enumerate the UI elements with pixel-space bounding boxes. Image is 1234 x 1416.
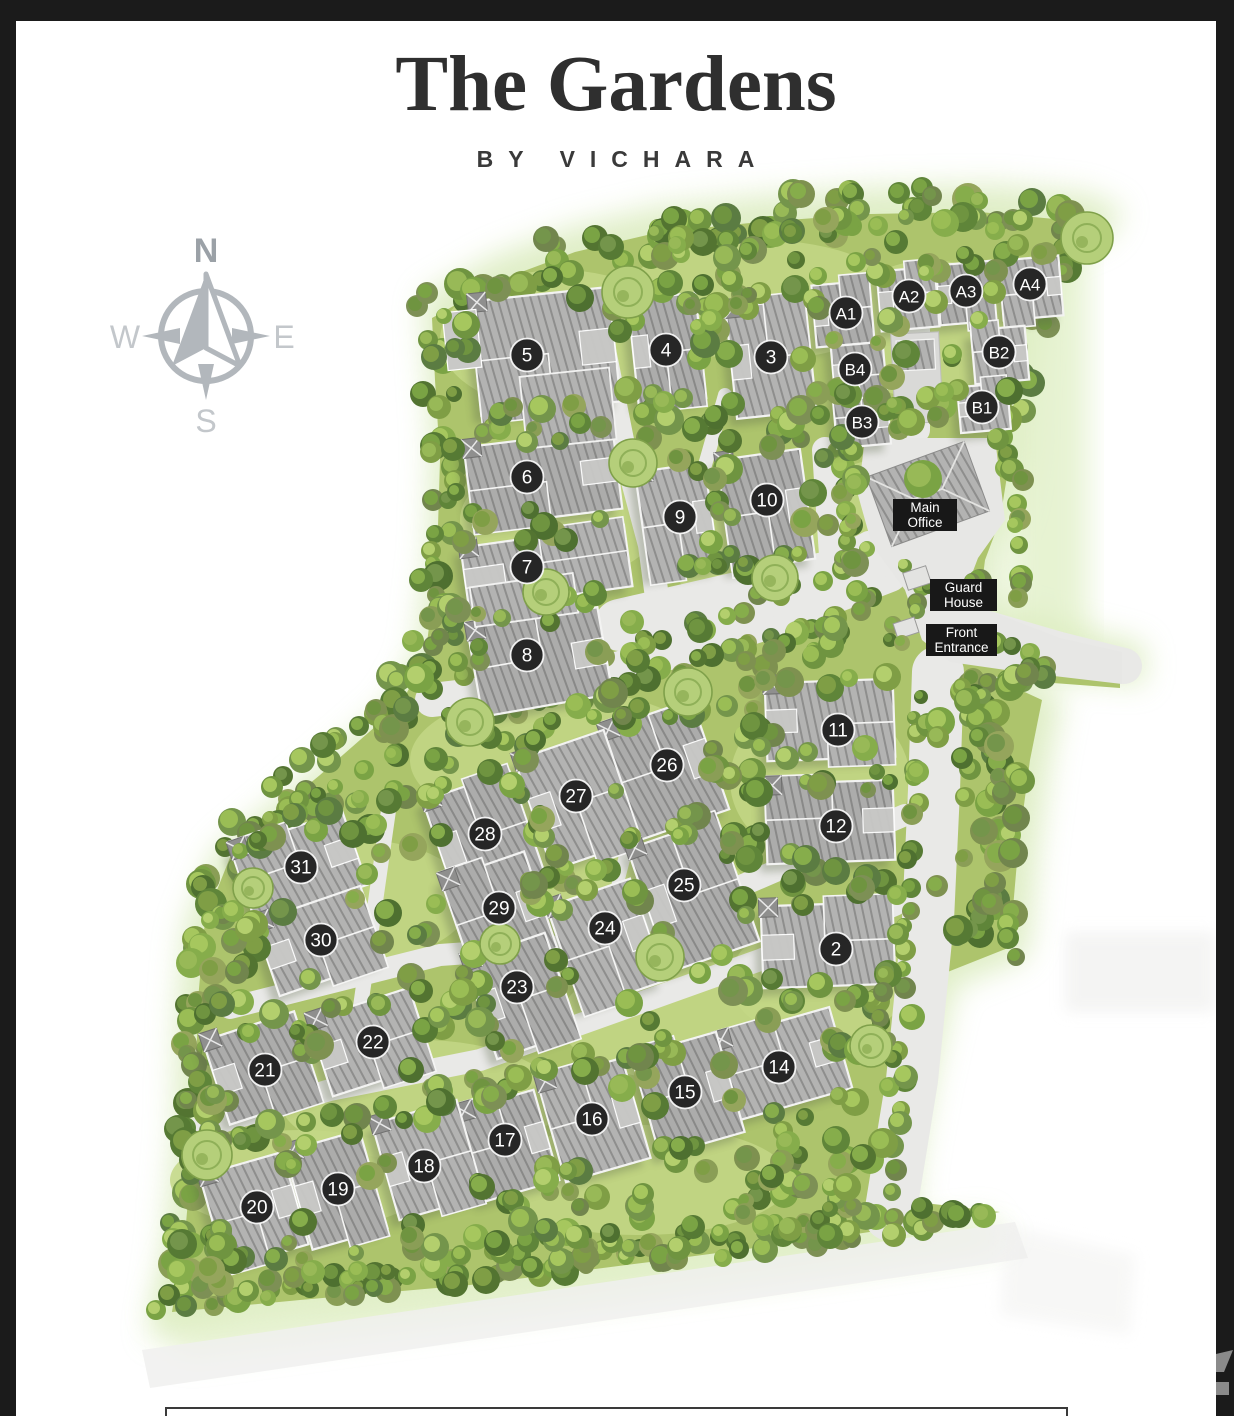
svg-text:12: 12: [825, 817, 846, 838]
svg-text:Office: Office: [907, 515, 942, 530]
svg-text:W: W: [110, 319, 141, 355]
svg-text:A1: A1: [836, 305, 857, 324]
svg-text:22: 22: [362, 1033, 383, 1054]
svg-text:10: 10: [756, 491, 777, 512]
svg-text:27: 27: [565, 787, 586, 808]
svg-text:17: 17: [494, 1131, 515, 1152]
svg-text:A2: A2: [899, 288, 920, 307]
svg-text:Guard: Guard: [945, 580, 983, 595]
svg-text:B2: B2: [989, 344, 1010, 363]
svg-text:A3: A3: [956, 283, 977, 302]
svg-text:31: 31: [290, 858, 311, 879]
svg-text:Front: Front: [946, 625, 978, 640]
svg-text:9: 9: [675, 508, 686, 529]
svg-text:E: E: [273, 319, 294, 355]
svg-text:26: 26: [656, 756, 677, 777]
svg-text:S: S: [195, 403, 216, 439]
svg-text:B3: B3: [852, 414, 873, 433]
svg-text:B1: B1: [972, 399, 993, 418]
svg-text:8: 8: [522, 646, 533, 667]
svg-text:25: 25: [673, 876, 694, 897]
svg-text:30: 30: [310, 931, 331, 952]
svg-text:A4: A4: [1020, 276, 1041, 295]
svg-text:Main: Main: [910, 500, 939, 515]
svg-text:The Gardens: The Gardens: [395, 41, 836, 128]
svg-text:19: 19: [327, 1180, 348, 1201]
svg-text:Entrance: Entrance: [934, 640, 988, 655]
svg-text:14: 14: [768, 1058, 790, 1079]
svg-text:BY VICHARA: BY VICHARA: [477, 146, 770, 172]
svg-text:5: 5: [522, 346, 533, 367]
svg-text:15: 15: [674, 1083, 695, 1104]
svg-text:28: 28: [474, 825, 495, 846]
svg-text:2: 2: [831, 940, 842, 961]
svg-text:7: 7: [522, 558, 533, 579]
svg-text:11: 11: [828, 721, 848, 742]
svg-text:3: 3: [766, 348, 777, 369]
svg-text:4: 4: [661, 341, 672, 362]
svg-text:16: 16: [581, 1110, 602, 1131]
svg-text:29: 29: [488, 899, 509, 920]
svg-text:20: 20: [246, 1198, 267, 1219]
svg-text:24: 24: [594, 919, 616, 940]
svg-text:6: 6: [522, 468, 533, 489]
svg-text:21: 21: [254, 1061, 275, 1082]
svg-text:18: 18: [413, 1157, 434, 1178]
svg-text:23: 23: [506, 978, 527, 999]
svg-text:B4: B4: [845, 361, 866, 380]
svg-text:House: House: [944, 595, 983, 610]
svg-text:N: N: [194, 232, 219, 270]
